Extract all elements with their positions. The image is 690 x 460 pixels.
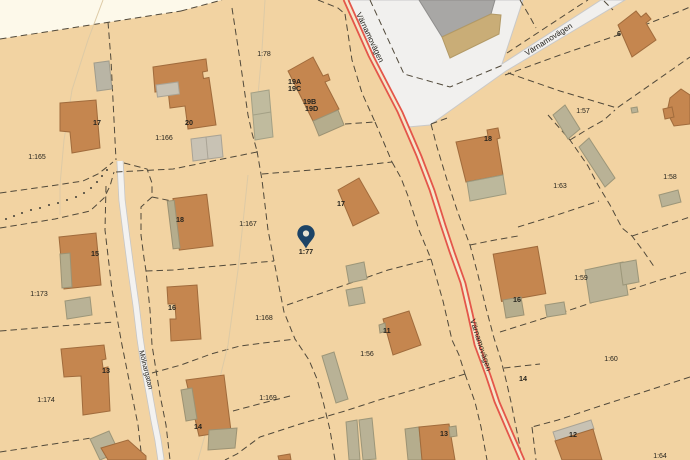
svg-text:1:58: 1:58	[663, 174, 677, 181]
svg-text:11: 11	[383, 326, 391, 335]
svg-text:1:59: 1:59	[574, 275, 588, 282]
svg-text:6: 6	[617, 29, 621, 38]
svg-text:1:63: 1:63	[553, 183, 567, 190]
svg-text:19D: 19D	[305, 104, 318, 113]
svg-text:16: 16	[513, 295, 521, 304]
svg-text:1:169: 1:169	[259, 395, 277, 402]
svg-text:1:166: 1:166	[155, 135, 173, 142]
svg-text:17: 17	[337, 199, 345, 208]
svg-text:13: 13	[440, 429, 448, 438]
svg-text:18: 18	[484, 134, 492, 143]
svg-text:1:64: 1:64	[653, 453, 667, 460]
svg-text:1:60: 1:60	[604, 356, 618, 363]
svg-text:1:56: 1:56	[360, 351, 374, 358]
svg-text:20: 20	[185, 118, 193, 127]
svg-text:15: 15	[91, 249, 99, 258]
svg-text:19C: 19C	[288, 84, 301, 93]
svg-text:16: 16	[168, 303, 176, 312]
svg-text:1:173: 1:173	[30, 291, 48, 298]
svg-text:1:168: 1:168	[255, 315, 273, 322]
svg-text:13: 13	[102, 366, 110, 375]
svg-text:12: 12	[569, 430, 577, 439]
svg-text:14: 14	[194, 422, 202, 431]
svg-text:1:167: 1:167	[239, 221, 257, 228]
svg-text:17: 17	[93, 118, 101, 127]
svg-text:1:165: 1:165	[28, 154, 46, 161]
svg-text:18: 18	[176, 215, 184, 224]
svg-text:1:57: 1:57	[576, 108, 590, 115]
svg-text:1:174: 1:174	[37, 397, 55, 404]
svg-text:1:78: 1:78	[257, 51, 271, 58]
svg-text:14: 14	[519, 374, 527, 383]
